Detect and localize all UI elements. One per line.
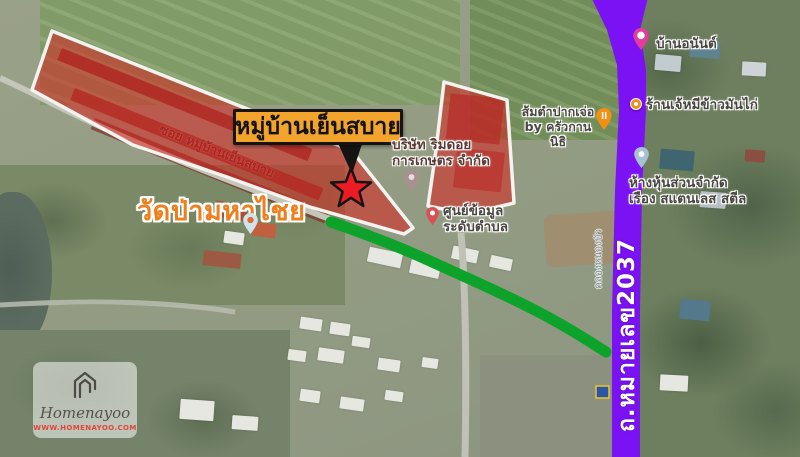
- info-center-pin-icon: [426, 207, 439, 225]
- watermark-badge: Homenayoo WWW.HOMENAYOO.COM: [33, 362, 137, 438]
- village-callout: หมู่บ้านเย็นสบาย: [233, 109, 403, 145]
- stainless-pin-icon: [634, 147, 649, 168]
- poi-label-somtam: ส้มตำปากเจ่อ by ครัวกานนิธิ: [520, 104, 596, 149]
- poi-label-rimdoi-line2: การเกษตร จำกัด: [392, 153, 490, 169]
- rimdoi-pin-icon: [404, 170, 419, 191]
- poi-label-stainless-line2: เรือง สแตนเลส สตีล: [629, 191, 746, 207]
- poi-label-rimdoi-line1: บริษัท ริมดอย: [392, 137, 471, 153]
- road-shield-icon: [596, 386, 609, 398]
- highway-label: ถ.หมายเลข2037: [609, 238, 645, 432]
- local-road: [461, 233, 466, 457]
- poi-label-chicken-rice: ร้านเจ้หมีข้าวมันไก่: [646, 97, 758, 113]
- poi-label-stainless: ห้างหุ้นส่วนจำกัด เรือง สแตนเลส สตีล: [629, 175, 746, 207]
- temple-pin-icon: [243, 213, 258, 234]
- poi-label-info-center: ศูนย์ข้อมูล ระดับตำบล: [443, 203, 508, 235]
- canal-label: คลองหนองบัว: [592, 229, 607, 289]
- poi-label-stainless-line1: ห้างหุ้นส่วนจำกัด: [629, 175, 728, 191]
- ban-anan-pin-icon: [633, 28, 648, 49]
- poi-label-rimdoi: บริษัท ริมดอย การเกษตร จำกัด: [392, 137, 490, 169]
- poi-label-somtam-line2: by ครัวกานนิธิ: [525, 119, 592, 149]
- watermark-url: WWW.HOMENAYOO.COM: [33, 424, 137, 432]
- chicken-rice-pin-icon: [630, 98, 642, 110]
- watermark-brand: Homenayoo: [40, 404, 130, 422]
- map-screenshot: ซอย หมู่บ้านเย็นสบาย หมู่บ้านเย็นสบาย วั…: [0, 0, 800, 457]
- temple-label: วัดป่ามหาไชย: [137, 189, 305, 232]
- poi-label-info-center-line2: ระดับตำบล: [443, 219, 508, 235]
- somtam-pin-icon: [596, 108, 611, 129]
- local-road: [0, 302, 235, 312]
- poi-label-info-center-line1: ศูนย์ข้อมูล: [443, 203, 503, 219]
- poi-label-somtam-line1: ส้มตำปากเจ่อ: [522, 104, 595, 119]
- poi-label-ban-anan: บ้านอนันต์: [656, 36, 717, 52]
- homenayoo-house-icon: [67, 369, 103, 403]
